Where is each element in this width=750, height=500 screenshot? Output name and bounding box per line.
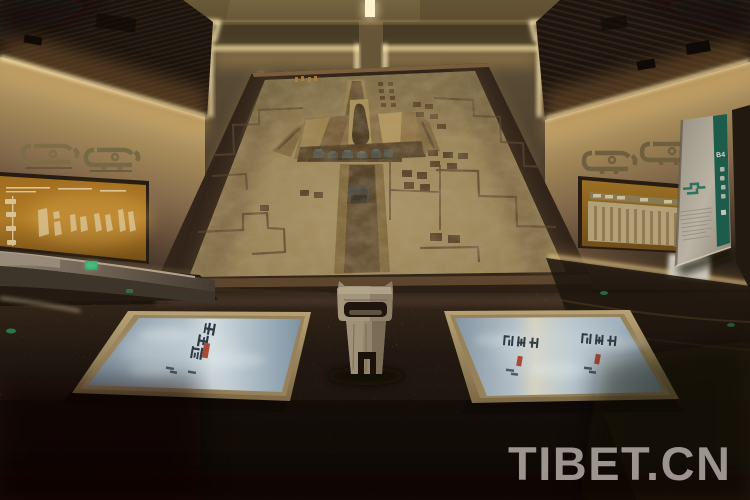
svg-text:TIBET.CN: TIBET.CN [508,437,732,490]
svg-text:B4: B4 [716,152,726,160]
